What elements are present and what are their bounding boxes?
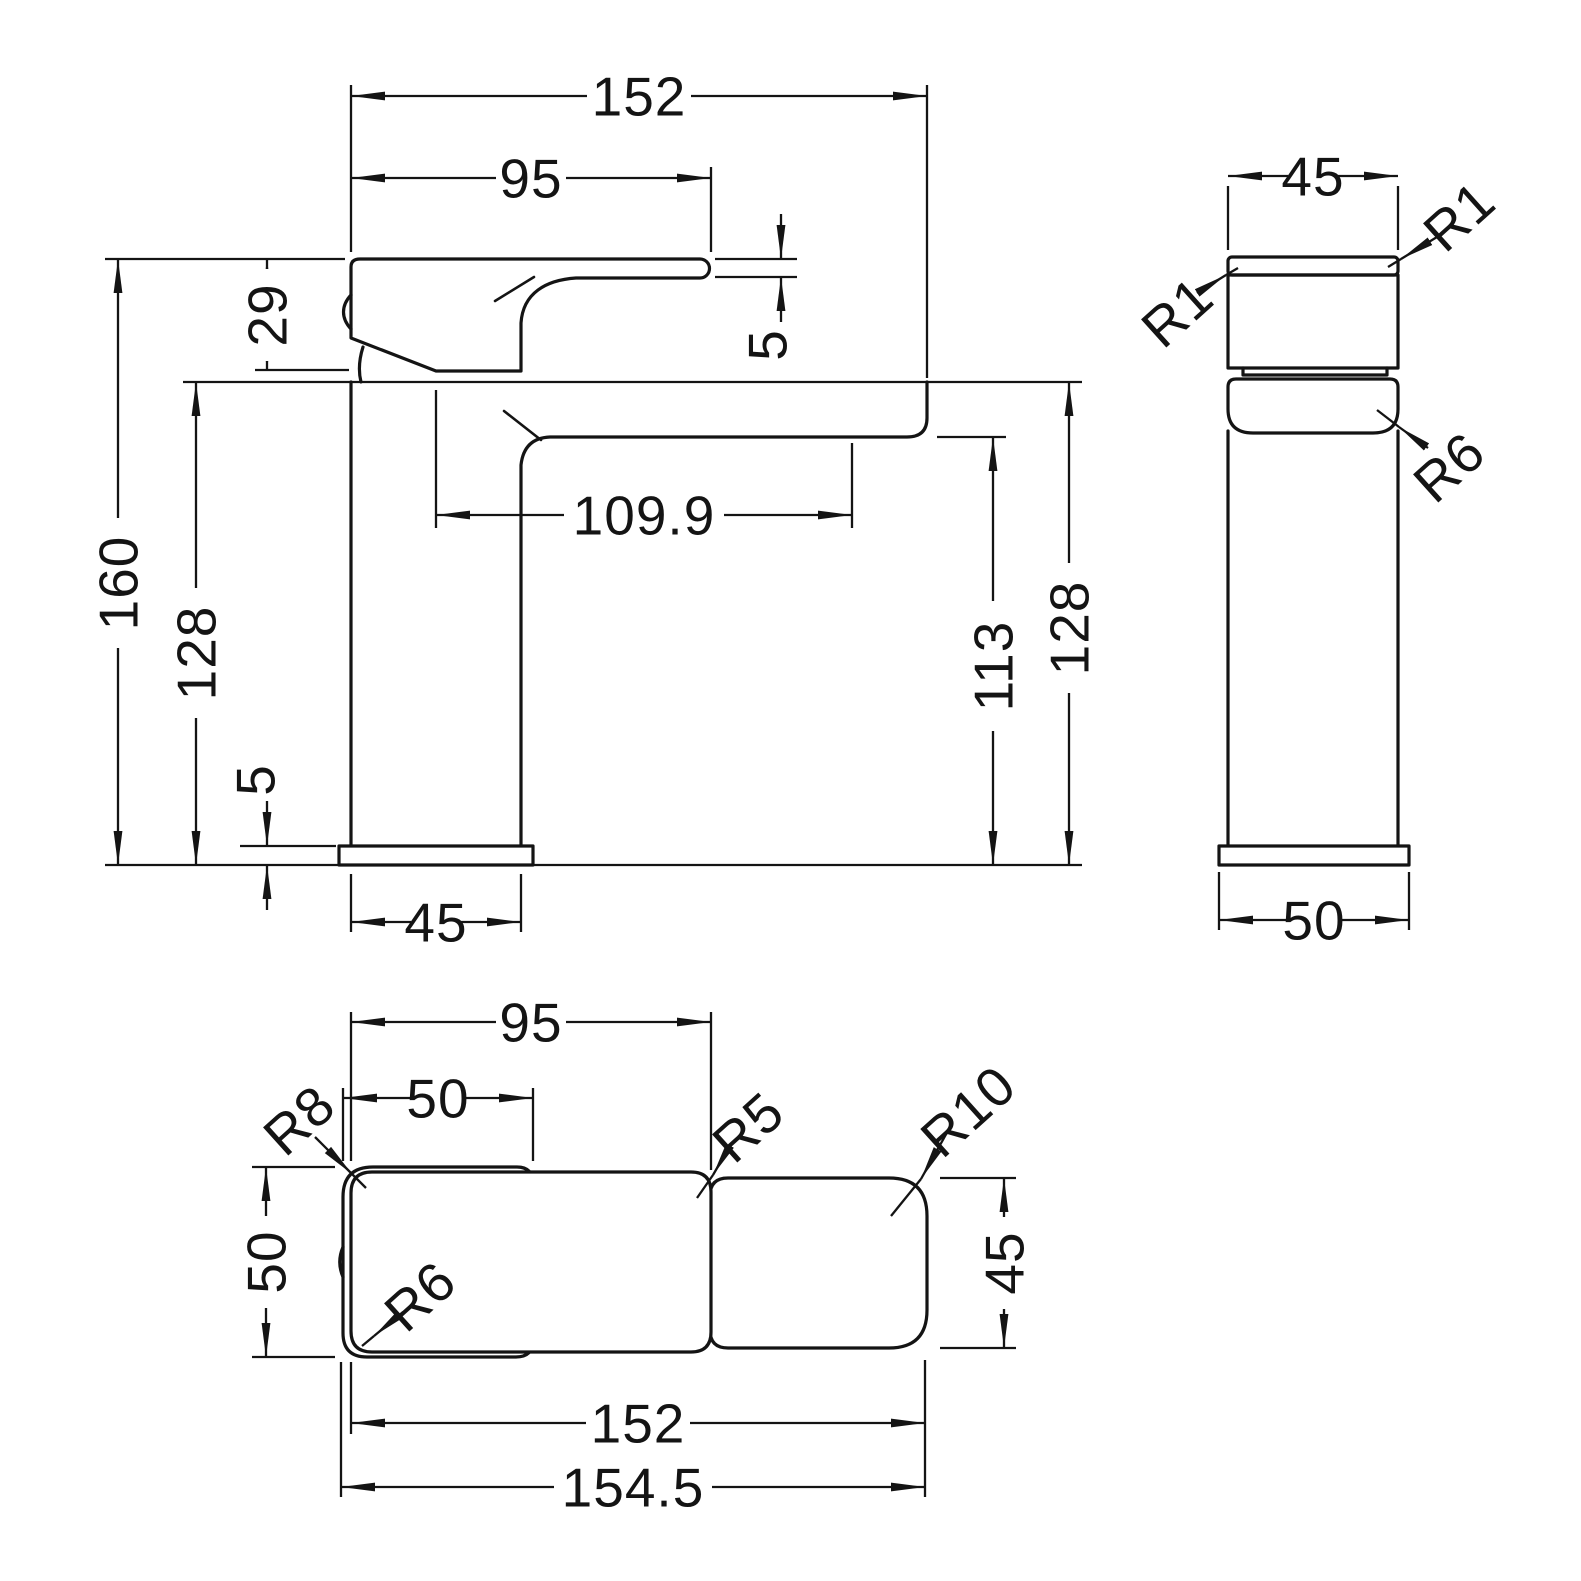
- front-spout-column-outline: [351, 382, 927, 846]
- dim-front-tip-thickness: 5: [736, 329, 798, 361]
- dim-front-spout-reach: 109.9: [573, 484, 716, 546]
- dim-front-base-thickness: 5: [224, 764, 286, 796]
- front-lever-curve-tick: [495, 277, 534, 301]
- front-handle-body-outline: [351, 259, 710, 371]
- front-body-rear-arc: [359, 347, 363, 382]
- dim-front-deck-height-right: 128: [1038, 581, 1100, 676]
- dim-5t-ext: [715, 259, 797, 277]
- side-view: 45 R1 R1 R6 50: [1130, 145, 1507, 951]
- side-column: [1228, 431, 1398, 846]
- front-shoulder-tick: [504, 411, 541, 440]
- front-view: 152 95 29 5 160 128 5 45: [87, 65, 1100, 953]
- dim-side-cap-width: 45: [1281, 145, 1344, 207]
- dim-plan-spout-width: 45: [973, 1231, 1035, 1294]
- label-plan-spout-radius: R10: [909, 1053, 1028, 1169]
- dim-front-column-width: 45: [404, 891, 467, 953]
- dim-plan-handle-length: 95: [499, 991, 562, 1053]
- dim-front-total-height: 160: [87, 536, 149, 631]
- dim-plan-length: 152: [591, 1392, 686, 1454]
- label-side-radius-right: R1: [1412, 169, 1507, 263]
- dim-front-handle-height: 29: [236, 283, 298, 346]
- dim-plan-overall-length: 154.5: [562, 1456, 705, 1518]
- side-base-plate: [1219, 846, 1409, 865]
- front-base-plate: [339, 846, 533, 865]
- side-body: [1228, 275, 1398, 368]
- dim-side-base-width: 50: [1282, 889, 1345, 951]
- side-handle-cap: [1228, 257, 1398, 275]
- dim-plan-body-width: 50: [235, 1230, 297, 1293]
- label-plan-mid-radius: R5: [701, 1080, 796, 1174]
- dim-front-spout-clearance: 113: [962, 621, 1024, 712]
- dim-29-ext: [105, 259, 349, 370]
- label-side-radius-left: R1: [1130, 265, 1225, 359]
- leader-r6-side: [1399, 427, 1428, 448]
- dim-front-overall-length: 152: [592, 65, 687, 127]
- tap-technical-drawing: 152 95 29 5 160 128 5 45: [0, 0, 1581, 1581]
- drawing-sheet: 152 95 29 5 160 128 5 45: [0, 0, 1581, 1581]
- plan-spout-outline: [710, 1178, 927, 1348]
- plan-view: 95 50 R8 R5 R10 50 R6 45: [235, 991, 1035, 1518]
- side-shoulder-section: [1228, 379, 1398, 433]
- dim-front-deck-height-left: 128: [165, 606, 227, 701]
- label-side-shoulder-radius: R6: [1402, 420, 1497, 514]
- dim-152-ext: [351, 85, 927, 378]
- dim-front-handle-length: 95: [499, 147, 562, 209]
- dim-plan-body-length: 50: [406, 1067, 469, 1129]
